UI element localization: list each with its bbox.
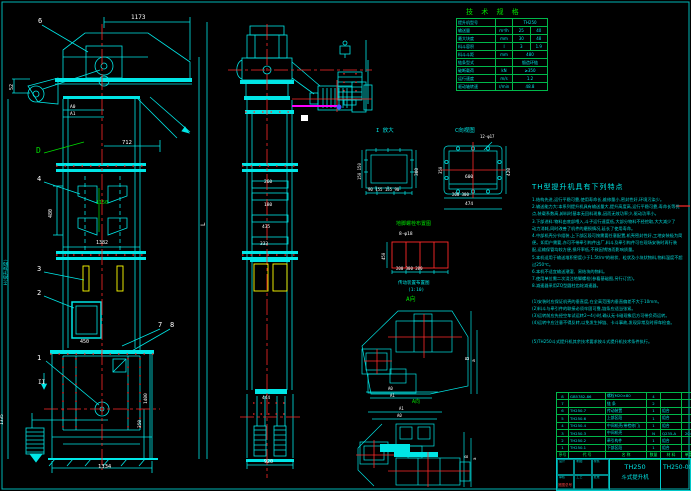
- tb-cell: 设计: [557, 459, 574, 475]
- part-weight: [682, 422, 691, 429]
- dim-450b: 450: [382, 253, 386, 260]
- spec-value: 480: [513, 51, 548, 59]
- spec-row: 链条型式 锻造环链: [457, 59, 548, 67]
- tb-cell: 批准: [592, 475, 609, 491]
- part-name: 链 条: [606, 400, 647, 407]
- dim-333: 333: [260, 243, 268, 248]
- parts-row: 8 GB5782-86 螺栓M20×80 4: [557, 393, 691, 400]
- view-c-title: C向视图: [455, 129, 475, 135]
- spec-label: 驱动轴转速: [457, 83, 496, 91]
- spec-row: 驱动轴转速 r/min 48.8: [457, 83, 548, 91]
- dim-180: 180: [264, 204, 272, 209]
- spec-row: 最大块度 mm 30 48: [457, 35, 548, 43]
- spec-unit: r/min: [496, 83, 513, 91]
- dim-a0-v1: A0: [388, 387, 393, 391]
- dim-200-300: 200 300: [452, 193, 469, 197]
- part-qty: 1: [647, 422, 661, 429]
- part-weight: [682, 437, 691, 444]
- machine-model: TH250: [610, 463, 660, 471]
- spec-unit: mm: [496, 51, 513, 59]
- spec-label: 料斗容积: [457, 43, 496, 51]
- dim-a1-rot: a: [473, 359, 478, 362]
- dim-a1-v1: A1: [390, 394, 395, 398]
- dim-200-300-200: 200 300 200: [396, 267, 423, 271]
- dim-435: 435: [262, 226, 270, 231]
- spec-value: ≥350: [513, 67, 548, 75]
- dim-480: 480: [49, 209, 54, 218]
- balloon-7: 7: [158, 322, 162, 329]
- note-line: 4.中部机壳分节组装,上下部区段可按需要任意配置,机壳密封性好,工地安装极为简: [532, 232, 690, 239]
- bucket-outlines: [83, 264, 287, 291]
- hole-callout: 12-φ17: [480, 135, 494, 139]
- part-material: [661, 393, 682, 400]
- dim-a1: A1: [70, 113, 75, 118]
- note-line: 点,装载系数高,卸料时基本无回料现象,因而无效功率少,驱动功率小。: [532, 210, 690, 217]
- part-name: 传动装置: [606, 407, 647, 414]
- note-line: (5)TH250斗式提升机其余技术要求按斗式提升机技术条件执行。: [532, 338, 690, 345]
- dim-1173: 1173: [131, 15, 145, 21]
- note-line: 便。如用户需要,亦可不带牵引构件出厂,料斗及牵引构件可在现场安装时再行装: [532, 239, 690, 246]
- dim-52: 52: [10, 84, 15, 90]
- part-qty: 1: [647, 415, 661, 422]
- balloon-8: 8: [170, 322, 174, 329]
- balloon-3: 3: [37, 266, 41, 273]
- dim-600: 600: [465, 176, 473, 181]
- part-no: 2: [557, 437, 569, 444]
- spec-row: 料斗容积 l 3 1.9: [457, 43, 548, 51]
- dim-lift-height: H(提升高度): [5, 259, 10, 285]
- dim-1400: 1400: [145, 393, 150, 404]
- spec-label: 运行速度: [457, 75, 496, 83]
- note-line: 3.下部进料:物料由底部喂入,斗子运行速度低,大部分物料不经挖取,大大减少了: [532, 218, 690, 225]
- dim-474: 474: [465, 203, 473, 208]
- spec-value: 25: [513, 27, 531, 35]
- part-name: 中间机壳: [606, 429, 647, 436]
- part-no: 3: [557, 429, 569, 436]
- spec-label: 料斗斗距: [457, 51, 496, 59]
- dim-300: 300: [416, 168, 421, 176]
- spec-unit: m/s: [496, 75, 513, 83]
- part-no: 6: [557, 407, 569, 414]
- dim-1382: 1382: [96, 241, 108, 246]
- spec-row: 破断载荷 kN ≥350: [457, 67, 548, 75]
- title-block-name: TH250 斗式提升机: [610, 459, 661, 490]
- spec-table: 提升机型号 TH250 输送量 m³/h 25 40 最大块度 mm 30 48…: [456, 18, 548, 91]
- spec-label: 输送量: [457, 27, 496, 35]
- part-code: TH250.3: [569, 429, 606, 436]
- note-line: 1.结构先进,运行平稳可靠,使用寿命长,维修量小,密封性好,环境污染少。: [532, 196, 690, 203]
- spec-value: 锻造环链: [513, 59, 548, 67]
- part-weight: [682, 407, 691, 414]
- view-a-label-1: A向: [406, 297, 416, 303]
- balloon-6: 6: [38, 18, 42, 25]
- parts-row: 2 TH250.2 牵引构件 1 组合: [557, 437, 691, 444]
- dim-350: 350: [139, 420, 144, 428]
- spec-value: 3: [513, 43, 531, 51]
- part-code: TH250.2: [569, 437, 606, 444]
- spec-label: 链条型式: [457, 59, 496, 67]
- spec-unit: [496, 19, 513, 27]
- section-i-title: I 放大: [376, 129, 394, 135]
- part-code: TH250.1: [569, 444, 606, 451]
- dim-a2: a: [473, 458, 477, 460]
- parts-row: 6 TH250.7 传动装置 1 组合: [557, 407, 691, 414]
- part-qty: 1: [647, 444, 661, 451]
- dim-bottom-row: 90 155 155 90: [368, 188, 399, 192]
- part-material: 组合: [661, 415, 682, 422]
- spec-unit: kN: [496, 67, 513, 75]
- section-mark-ii: II: [38, 380, 45, 386]
- spec-label: 最大块度: [457, 35, 496, 43]
- spec-value: 48: [530, 35, 548, 43]
- dim-1334: 1334: [98, 465, 111, 471]
- machine-name: 斗式提升机: [610, 473, 660, 481]
- dim-260: 260: [264, 181, 272, 186]
- view-a-label-2: A向: [412, 400, 420, 405]
- spec-unit: [496, 59, 513, 67]
- part-no: 8: [557, 393, 569, 400]
- part-qty: 1: [647, 407, 661, 414]
- spec-value: 30: [513, 35, 531, 43]
- spec-label: 提升机型号: [457, 19, 496, 27]
- spec-row: 提升机型号 TH250: [457, 19, 548, 27]
- part-name: 下部区段: [606, 444, 647, 451]
- parts-row: 3 TH250.3 中间机壳 N Q235-A 204: [557, 429, 691, 436]
- part-weight: 204: [682, 429, 691, 436]
- part-name: 螺栓M20×80: [606, 393, 647, 400]
- drive-layout-title: 传动装置布置图: [398, 282, 430, 287]
- part-material: 组合: [661, 444, 682, 451]
- tb-cell: 工艺: [574, 475, 591, 491]
- part-code: TH250.4: [569, 422, 606, 429]
- part-material: 组合: [661, 437, 682, 444]
- note-line: 7.使用单位需二次浇注地脚螺栓(参看基础图,另行订货)。: [532, 275, 690, 282]
- note-line: 6.本机不适宜输送潮湿、易结块的物料。: [532, 268, 690, 275]
- part-code: TH250.7: [569, 407, 606, 414]
- part-weight: [682, 415, 691, 422]
- spec-row: 运行速度 m/s 1.2: [457, 75, 548, 83]
- spec-value: TH250: [513, 19, 548, 27]
- title-block: 设计 制图 校核 审核 工艺 批准 TH250 斗式提升机 TH250-00: [556, 458, 691, 491]
- note-line: 2.输送能力大:本系列提升机具有输送量大,提升高度高,运行平稳可靠,寿命长等优: [532, 203, 690, 210]
- drawing-number: TH250-00: [661, 459, 690, 490]
- drive-layout-scale: (1:10): [408, 289, 424, 294]
- part-no: 4: [557, 422, 569, 429]
- dim-1335: 1335: [1, 414, 6, 425]
- dim-444: 444: [262, 397, 270, 402]
- tb-cell: 校核: [592, 459, 609, 475]
- spec-unit: l: [496, 43, 513, 51]
- part-no: 1: [557, 444, 569, 451]
- anchor-bolt-grid: [392, 242, 448, 268]
- dim-l: L: [201, 222, 207, 226]
- tb-cell: 制图: [574, 459, 591, 475]
- bolt-callout: 8-φ18: [399, 233, 413, 238]
- accent-marks: [44, 105, 342, 233]
- parts-row: 7 链 条 2: [557, 400, 691, 407]
- note-line: (3)运转前应先经空车试运转2~4小时,确认无卡碰现象后方可带负荷运转。: [532, 312, 690, 319]
- spec-unit: m³/h: [496, 27, 513, 35]
- note-line: (1)安装时应保证机壳的垂直度,在全高范围内垂直偏差不大于10mm。: [532, 298, 690, 305]
- part-qty: 2: [647, 400, 661, 407]
- spec-value: 48.8: [513, 83, 548, 91]
- flange-bands: [50, 78, 438, 462]
- notes-block: TH型提升机具有下列特点 1.结构先进,运行平稳可靠,使用寿命长,维修量小,密封…: [532, 182, 690, 346]
- title-block-note: 底图总号: [558, 483, 572, 488]
- part-material: 组合: [661, 422, 682, 429]
- spec-label: 破断载荷: [457, 67, 496, 75]
- dim-420: 420: [508, 168, 513, 176]
- spec-value: 1.2: [513, 75, 548, 83]
- dim-b2: B: [466, 455, 471, 458]
- balloon-1: 1: [37, 355, 41, 362]
- part-qty: 4: [647, 393, 661, 400]
- part-code: TH250.6: [569, 415, 606, 422]
- part-name: 上部区段: [606, 415, 647, 422]
- bolt-layout-title: 地脚螺栓布置图: [396, 222, 431, 227]
- parts-row: 1 TH250.1 下部区段 1 组合 见图: [557, 444, 691, 451]
- part-weight: [682, 400, 691, 407]
- parts-list-table: 8 GB5782-86 螺栓M20×80 4 7 链 条 2 6 TH250.7…: [556, 392, 691, 460]
- spec-value: 1.9: [530, 43, 548, 51]
- part-weight: [682, 444, 691, 451]
- spec-row: 输送量 m³/h 25 40: [457, 27, 548, 35]
- section-mark-d: D: [36, 147, 41, 155]
- note-line: 动力消耗,同时改善了机件的磨损情况,延长了使用寿命。: [532, 225, 690, 232]
- part-material: [661, 400, 682, 407]
- part-no: 5: [557, 415, 569, 422]
- spec-unit: mm: [496, 35, 513, 43]
- parts-row: 4 TH250.4 中间机壳(带检修门) 1 组合: [557, 422, 691, 429]
- dim-a0: A0: [70, 106, 75, 111]
- spec-row: 料斗斗距 mm 480: [457, 51, 548, 59]
- part-qty: N: [647, 429, 661, 436]
- part-code: [569, 400, 606, 407]
- part-material: Q235-A: [661, 429, 682, 436]
- spec-value: 40: [530, 27, 548, 35]
- note-line: (4)运转中应注意不得反转,以免发生掉链、卡斗事故,发现异常及时停车检查。: [532, 319, 690, 326]
- part-code: GB5782-86: [569, 393, 606, 400]
- note-line: 过250℃。: [532, 261, 690, 268]
- dim-350b: 350: [439, 167, 443, 174]
- part-weight: [682, 393, 691, 400]
- spec-table-title: 技 术 规 格: [466, 7, 522, 17]
- note-line: (2)料斗与牵引件的联接必须牢固可靠,链条应适当张紧。: [532, 305, 690, 312]
- dim-150-150: 150 150: [358, 163, 362, 180]
- dim-450: 450: [80, 340, 89, 345]
- dim-920: 920: [264, 460, 273, 465]
- dim-b1: B: [466, 357, 471, 360]
- dim-a1-v2: A1: [399, 407, 404, 411]
- cad-drawing-canvas: 1173 6 52 A0 A1 712 D 4 480 1150 1382 3 …: [0, 0, 691, 491]
- dim-712: 712: [122, 141, 132, 147]
- note-line: 5.本机适用于输送堆积密度小于1.5t/m³的粉状、粒状及小块状物料,物料温度不…: [532, 254, 690, 261]
- part-name: 中间机壳(带检修门): [606, 422, 647, 429]
- parts-row: 5 TH250.6 上部区段 1 组合 见图: [557, 415, 691, 422]
- part-no: 7: [557, 400, 569, 407]
- note-line: 8.减速器采用ZQ型圆柱齿轮减速器。: [532, 282, 690, 289]
- dim-1150: 1150: [96, 201, 108, 206]
- part-qty: 1: [647, 437, 661, 444]
- balloon-2: 2: [37, 290, 41, 297]
- notes-title: TH型提升机具有下列特点: [532, 182, 690, 192]
- dim-a0-v2: A0: [397, 414, 402, 418]
- bolt-tick-rows: [50, 73, 356, 428]
- part-name: 牵引构件: [606, 437, 647, 444]
- side-elevation-view: [237, 26, 372, 469]
- balloon-4: 4: [37, 176, 41, 183]
- part-material: 组合: [661, 407, 682, 414]
- note-line: 配,运输保管均较方便,损坏率低,不致因锈蚀而影响质量。: [532, 246, 690, 253]
